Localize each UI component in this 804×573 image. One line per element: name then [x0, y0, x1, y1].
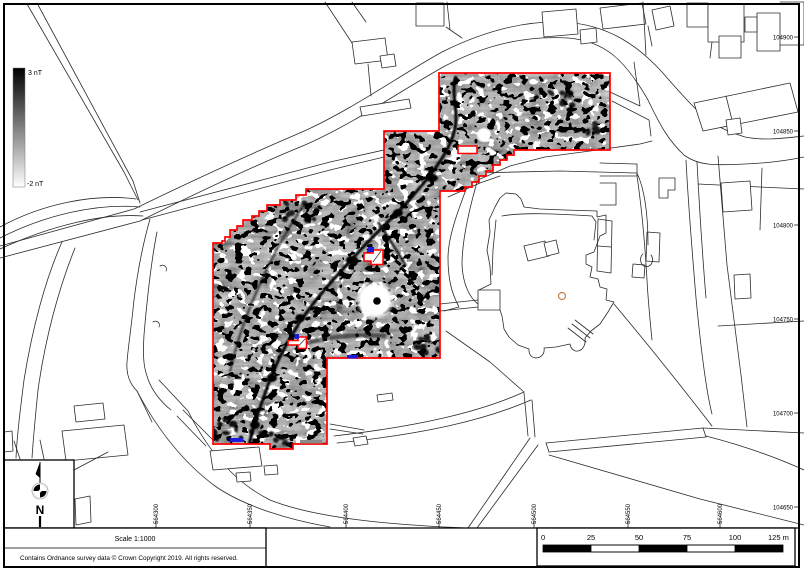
svg-text:Contains Ordnance survey data: Contains Ordnance survey data © Crown Co… — [20, 554, 238, 562]
svg-text:104900: 104900 — [773, 36, 794, 42]
svg-text:104750: 104750 — [773, 318, 794, 324]
svg-text:125 m: 125 m — [768, 533, 789, 542]
svg-text:104700: 104700 — [773, 412, 794, 418]
svg-text:564600: 564600 — [718, 503, 724, 524]
svg-text:3 nT: 3 nT — [28, 70, 43, 77]
svg-text:564500: 564500 — [532, 503, 538, 524]
svg-text:50: 50 — [635, 533, 643, 542]
svg-text:564550: 564550 — [626, 503, 632, 524]
svg-text:564300: 564300 — [154, 503, 160, 524]
svg-text:-2 nT: -2 nT — [27, 181, 44, 188]
svg-text:564350: 564350 — [248, 503, 254, 524]
svg-text:104650: 104650 — [773, 506, 794, 512]
svg-text:0: 0 — [541, 533, 545, 542]
svg-text:104800: 104800 — [773, 224, 794, 230]
svg-text:Scale 1:1000: Scale 1:1000 — [115, 536, 156, 543]
svg-text:564400: 564400 — [344, 503, 350, 524]
svg-text:N: N — [36, 503, 45, 517]
svg-text:25: 25 — [587, 533, 595, 542]
svg-text:100: 100 — [729, 533, 742, 542]
svg-text:104850: 104850 — [773, 130, 794, 136]
svg-text:564450: 564450 — [437, 503, 443, 524]
svg-text:75: 75 — [683, 533, 691, 542]
